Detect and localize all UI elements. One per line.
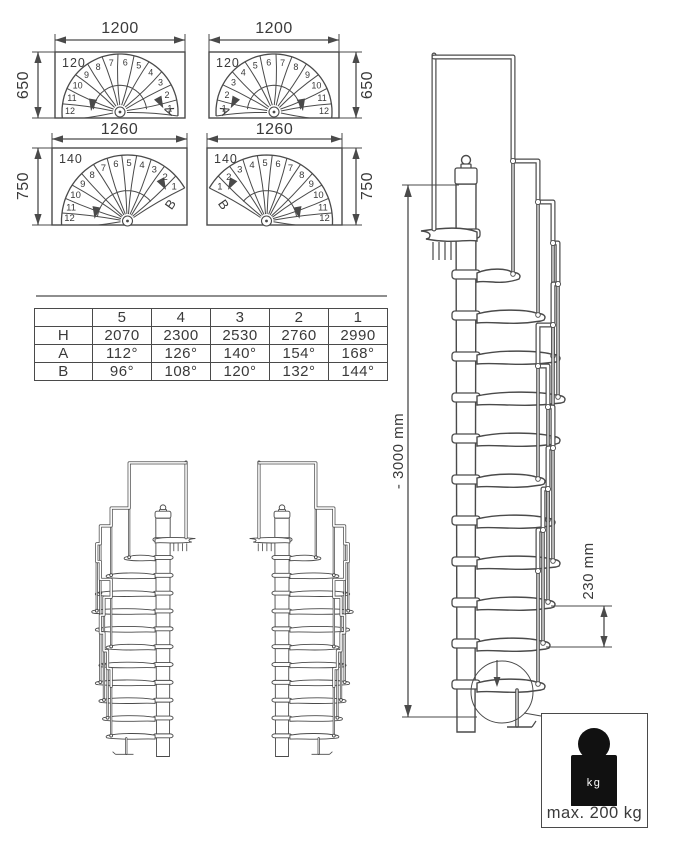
plan-side-dim-label: 750 <box>360 156 376 216</box>
fan-step-number: 4 <box>241 68 246 78</box>
stair-column <box>456 184 476 732</box>
side-view-right <box>250 462 354 756</box>
riser-dimension-label: 230 mm <box>581 531 597 611</box>
fan-step-number: 7 <box>101 163 106 174</box>
fan-step-number: 7 <box>280 58 285 68</box>
load-capacity-box: kg max. 200 kg <box>541 713 648 828</box>
plan-top-dim-label: 1260 <box>52 122 187 138</box>
fan-step-number: 5 <box>262 158 267 169</box>
stair-tread <box>477 310 545 323</box>
fan-step-number: 5 <box>136 61 141 71</box>
plan-top-dim-label: 1200 <box>209 21 339 37</box>
stair-tread <box>477 474 545 487</box>
fan-step-number: 1 <box>171 182 176 193</box>
fan-step-number: 3 <box>231 78 236 88</box>
stair-tread <box>477 679 545 692</box>
table-row-label: B <box>35 363 93 381</box>
stair-tread <box>477 351 560 364</box>
fan-step-number: 5 <box>126 158 131 169</box>
fan-step-number: 3 <box>158 78 163 88</box>
fan-step-number: 11 <box>67 93 76 103</box>
fan-step-number: 3 <box>152 165 157 176</box>
table-header-cell: 2 <box>270 309 329 327</box>
fan-step-number: 2 <box>225 90 230 100</box>
technical-drawing-sheet: 123456789101112120A123456789101112120A12… <box>0 0 674 854</box>
table-cell: 132° <box>270 363 329 381</box>
table-cell: 2070 <box>93 327 152 345</box>
stair-tread <box>106 733 155 739</box>
table-cell: 144° <box>329 363 388 381</box>
stair-top-platform <box>250 537 290 543</box>
fan-step-number: 6 <box>113 159 118 170</box>
fan-step-number: 4 <box>249 160 254 171</box>
stair-column <box>156 518 170 756</box>
plan-side-dim-label: 750 <box>16 156 32 216</box>
fan-step-number: 12 <box>319 106 329 116</box>
stair-top-platform <box>155 537 195 543</box>
fan-step-number: 8 <box>293 62 298 72</box>
stair-top-platform <box>421 228 477 241</box>
spec-table: 54321H20702300253027602990A112°126°140°1… <box>34 308 388 381</box>
table-cell: 168° <box>329 345 388 363</box>
fan-step-number: 1 <box>217 182 222 193</box>
table-corner-cell <box>35 309 93 327</box>
plan-750-right: 123456789101112140B <box>207 148 342 228</box>
fan-step-number: 2 <box>163 172 168 183</box>
plan-side-dim-label: 650 <box>16 55 32 115</box>
plan-750-left: 123456789101112140B <box>52 148 187 228</box>
fan-step-number: 12 <box>64 213 75 224</box>
stair-column <box>275 518 289 756</box>
fan-step-number: 7 <box>109 58 114 68</box>
fan-step-number: 11 <box>317 93 326 103</box>
table-header-cell: 1 <box>329 309 388 327</box>
fan-rotation-letter: B <box>162 197 179 213</box>
table-cell: 154° <box>270 345 329 363</box>
table-cell: 108° <box>152 363 211 381</box>
fan-corner-label: 140 <box>214 152 238 166</box>
fan-step-number: 4 <box>139 160 144 171</box>
fan-step-number: 2 <box>226 172 231 183</box>
fan-step-number: 4 <box>148 68 153 78</box>
fan-step-number: 8 <box>90 170 95 181</box>
fan-corner-label: 120 <box>216 56 240 70</box>
fan-step-number: 10 <box>313 190 324 201</box>
fan-step-number: 8 <box>299 170 304 181</box>
fan-step-number: 9 <box>309 179 314 190</box>
fan-rotation-letter: B <box>215 197 232 213</box>
table-cell: 96° <box>93 363 152 381</box>
fan-step-number: 8 <box>96 62 101 72</box>
riser-dimension <box>546 606 612 647</box>
table-row: 54321 <box>35 309 388 327</box>
table-row-label: H <box>35 327 93 345</box>
table-cell: 120° <box>211 363 270 381</box>
plan-650-left: 123456789101112120A <box>55 52 185 120</box>
fan-step-number: 12 <box>319 213 330 224</box>
fan-step-number: 6 <box>266 57 271 67</box>
table-row-label: A <box>35 345 93 363</box>
fan-step-number: 10 <box>311 81 321 91</box>
elevation-view <box>421 55 565 732</box>
stair-tread <box>106 573 155 579</box>
fan-step-number: 12 <box>65 106 75 116</box>
fan-step-number: 9 <box>80 179 85 190</box>
fan-step-number: 5 <box>253 61 258 71</box>
table-row: H20702300253027602990 <box>35 327 388 345</box>
fan-corner-label: 120 <box>62 56 86 70</box>
fan-step-number: 11 <box>66 202 76 213</box>
table-header-cell: 5 <box>93 309 152 327</box>
stair-tread <box>290 573 339 579</box>
fan-rotation-letter: A <box>217 104 234 117</box>
fan-step-number: 7 <box>288 163 293 174</box>
table-header-cell: 3 <box>211 309 270 327</box>
fan-corner-label: 140 <box>59 152 83 166</box>
fan-step-number: 10 <box>70 190 81 201</box>
table-cell: 2990 <box>329 327 388 345</box>
stair-tread <box>290 733 339 739</box>
stair-tread <box>106 644 155 650</box>
stair-tread <box>95 591 155 597</box>
table-cell: 2760 <box>270 327 329 345</box>
fan-step-number: 10 <box>73 81 83 91</box>
max-load-label: max. 200 kg <box>542 804 647 823</box>
table-row: A112°126°140°154°168° <box>35 345 388 363</box>
fan-step-number: 6 <box>275 159 280 170</box>
fan-step-number: 11 <box>318 202 328 213</box>
kg-icon-label: kg <box>587 777 602 789</box>
plan-top-dim-label: 1260 <box>207 122 342 138</box>
kg-weight-icon: kg <box>542 714 646 806</box>
table-header-cell: 4 <box>152 309 211 327</box>
plan-650-right: 123456789101112120A <box>209 52 339 120</box>
side-view-left <box>92 462 196 756</box>
fan-step-number: 6 <box>123 57 128 67</box>
plan-side-dim-label: 650 <box>360 55 376 115</box>
fan-step-number: 3 <box>237 165 242 176</box>
fan-step-number: 9 <box>305 70 310 80</box>
fan-step-number: 9 <box>84 70 89 80</box>
stair-tread <box>290 644 339 650</box>
table-cell: 140° <box>211 345 270 363</box>
table-cell: 112° <box>93 345 152 363</box>
plan-top-dim-label: 1200 <box>55 21 185 37</box>
table-cell: 2300 <box>152 327 211 345</box>
table-cell: 2530 <box>211 327 270 345</box>
fan-step-number: 2 <box>164 90 169 100</box>
table-cell: 126° <box>152 345 211 363</box>
height-dimension-label: - 3000 mm <box>391 391 407 511</box>
stair-tread <box>290 591 350 597</box>
table-row: B96°108°120°132°144° <box>35 363 388 381</box>
